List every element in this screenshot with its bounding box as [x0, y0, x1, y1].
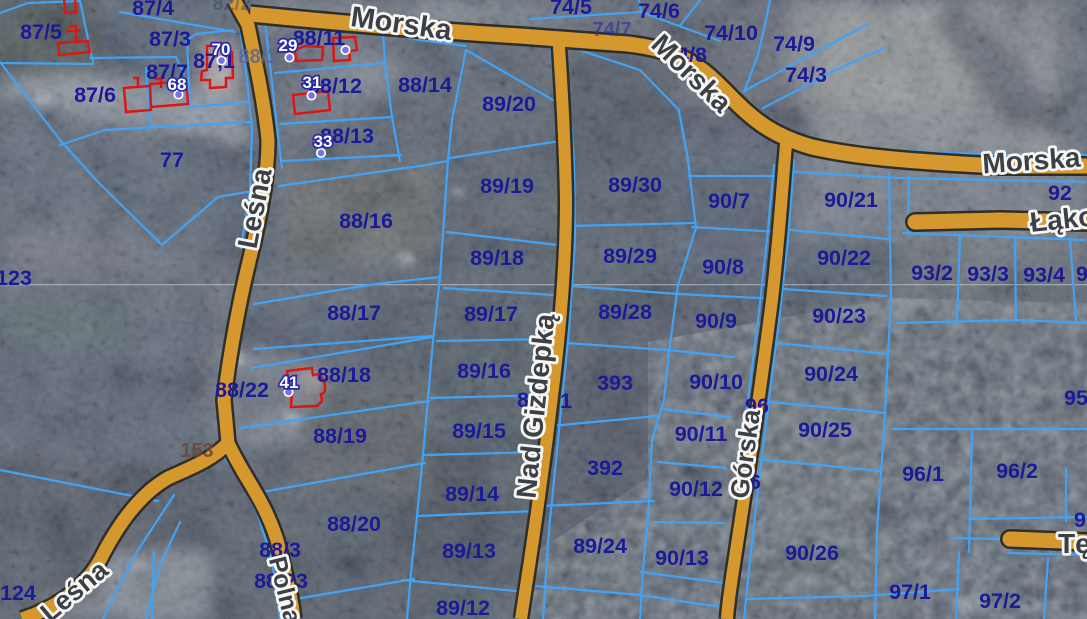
svg-text:90/26: 90/26 — [785, 541, 839, 565]
svg-text:89/28: 89/28 — [598, 300, 652, 324]
svg-text:77: 77 — [160, 148, 184, 172]
svg-text:96/1: 96/1 — [902, 462, 944, 486]
svg-text:88/11: 88/11 — [293, 26, 346, 50]
svg-text:93/4: 93/4 — [1023, 263, 1065, 287]
svg-text:33: 33 — [314, 132, 333, 151]
svg-text:88/1: 88/1 — [239, 46, 278, 68]
svg-text:68: 68 — [168, 75, 187, 94]
svg-text:88/20: 88/20 — [327, 512, 381, 536]
svg-text:392: 392 — [587, 456, 623, 480]
svg-text:89/29: 89/29 — [603, 244, 657, 268]
svg-text:90/7: 90/7 — [708, 189, 750, 213]
svg-text:93/2: 93/2 — [911, 261, 953, 285]
svg-text:90/8: 90/8 — [702, 255, 744, 279]
svg-text:87/5: 87/5 — [20, 20, 62, 44]
svg-text:95: 95 — [1064, 386, 1087, 410]
svg-text:Tęczowa: Tęczowa — [1058, 528, 1087, 559]
svg-text:90/22: 90/22 — [817, 246, 871, 270]
svg-text:89/18: 89/18 — [470, 246, 524, 270]
svg-text:74/7: 74/7 — [593, 19, 632, 41]
svg-text:93/3: 93/3 — [967, 262, 1009, 286]
svg-text:74/10: 74/10 — [704, 21, 758, 45]
svg-text:90/11: 90/11 — [675, 422, 728, 446]
svg-text:89/20: 89/20 — [482, 92, 536, 116]
svg-text:97/2: 97/2 — [979, 589, 1021, 613]
svg-text:89/30: 89/30 — [608, 173, 662, 197]
svg-text:41: 41 — [280, 373, 299, 392]
svg-text:89/15: 89/15 — [452, 419, 506, 443]
svg-text:87/6: 87/6 — [74, 83, 116, 107]
svg-text:89/12: 89/12 — [436, 596, 490, 619]
svg-text:74/6: 74/6 — [638, 0, 680, 23]
svg-text:87/3: 87/3 — [149, 27, 191, 51]
svg-text:89/19: 89/19 — [480, 174, 534, 198]
svg-text:74/3: 74/3 — [785, 63, 827, 87]
svg-text:88/19: 88/19 — [313, 424, 367, 448]
svg-text:74/5: 74/5 — [550, 0, 592, 19]
svg-text:124: 124 — [0, 581, 36, 605]
svg-text:88/22: 88/22 — [215, 378, 269, 402]
svg-text:93: 93 — [1076, 262, 1087, 286]
svg-text:90/23: 90/23 — [812, 304, 866, 328]
svg-text:88/16: 88/16 — [339, 209, 393, 233]
svg-text:70: 70 — [212, 40, 231, 59]
svg-text:89/16: 89/16 — [457, 359, 511, 383]
svg-text:1: 1 — [560, 389, 572, 413]
svg-text:90/9: 90/9 — [695, 309, 737, 333]
svg-text:29: 29 — [279, 36, 298, 55]
svg-text:90/25: 90/25 — [798, 418, 852, 442]
svg-text:74/9: 74/9 — [773, 32, 815, 56]
svg-text:96/2: 96/2 — [996, 459, 1038, 483]
svg-text:393: 393 — [597, 371, 633, 395]
svg-text:90/21: 90/21 — [824, 188, 878, 212]
svg-text:97/1: 97/1 — [889, 580, 931, 604]
svg-text:89/24: 89/24 — [573, 534, 627, 558]
svg-text:89/13: 89/13 — [442, 539, 496, 563]
svg-text:89/17: 89/17 — [464, 302, 518, 326]
svg-text:31: 31 — [303, 73, 322, 92]
svg-text:92: 92 — [1048, 181, 1072, 205]
svg-text:88/14: 88/14 — [398, 73, 452, 97]
svg-text:90/13: 90/13 — [655, 546, 709, 570]
svg-text:82/2: 82/2 — [213, 0, 252, 15]
svg-text:87/4: 87/4 — [132, 0, 174, 20]
svg-text:90/24: 90/24 — [804, 362, 858, 386]
svg-text:88/17: 88/17 — [327, 301, 381, 325]
svg-text:90/12: 90/12 — [669, 477, 723, 501]
svg-text:123: 123 — [0, 266, 32, 290]
svg-text:88/18: 88/18 — [317, 363, 371, 387]
svg-text:90/10: 90/10 — [689, 370, 743, 394]
svg-text:89/14: 89/14 — [445, 482, 499, 506]
svg-text:153: 153 — [180, 440, 213, 462]
